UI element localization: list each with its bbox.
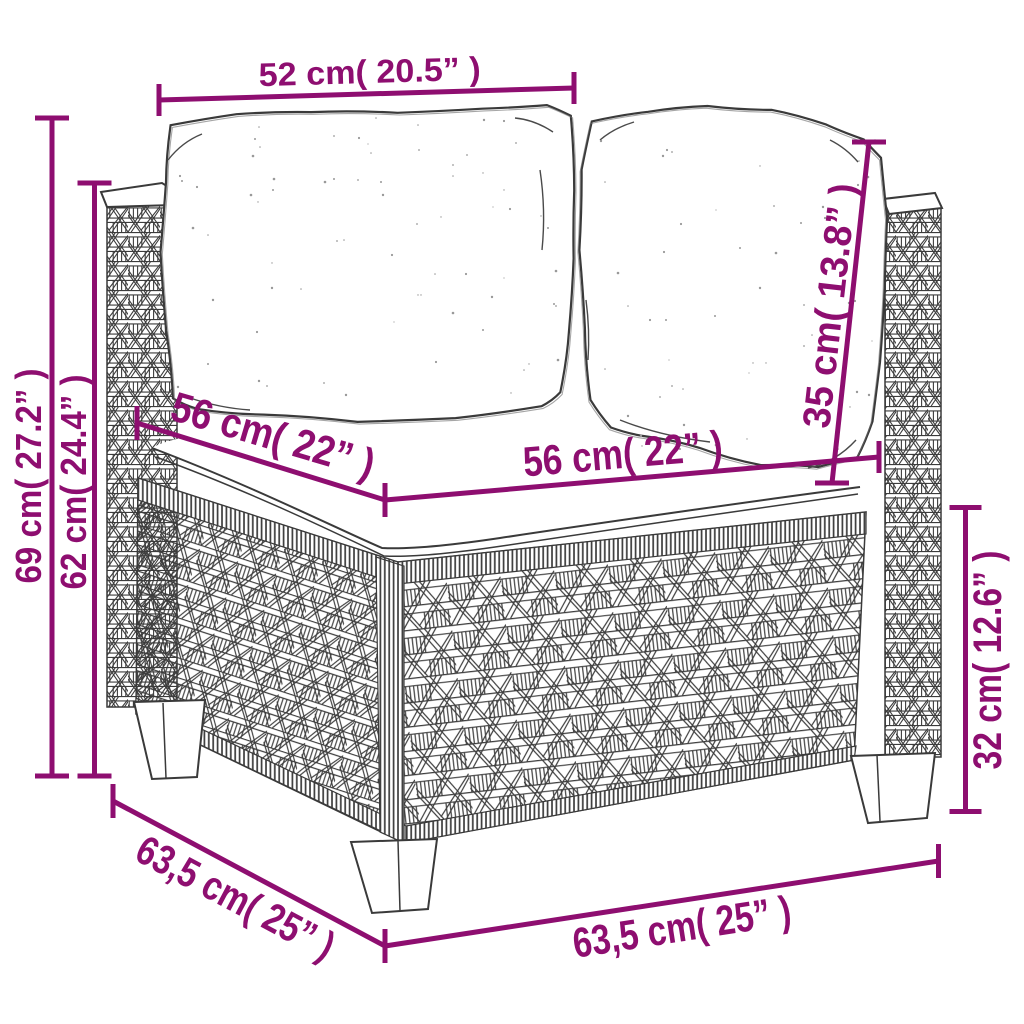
svg-text:62 cm( 24.4” ): 62 cm( 24.4” ) xyxy=(53,375,94,590)
svg-text:52 cm( 20.5” ): 52 cm( 20.5” ) xyxy=(258,50,481,93)
svg-text:69 cm( 27.2” ): 69 cm( 27.2” ) xyxy=(8,369,49,584)
svg-text:32 cm( 12.6” ): 32 cm( 12.6” ) xyxy=(966,551,1010,770)
